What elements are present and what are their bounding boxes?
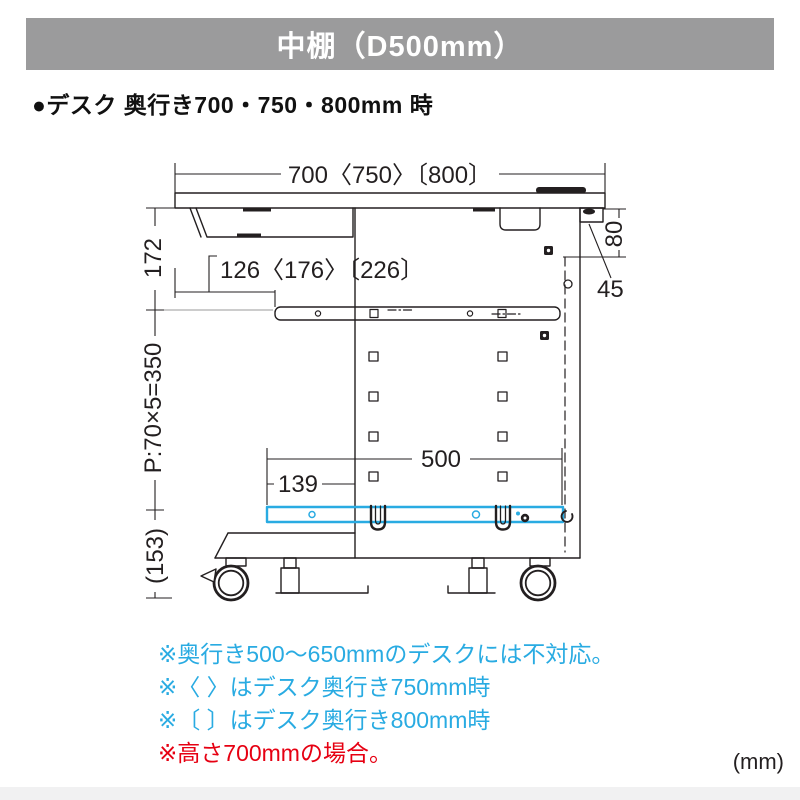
middle-shelf-group bbox=[267, 506, 573, 530]
cable-grommet-lid bbox=[536, 187, 586, 194]
under-desk-tray bbox=[190, 208, 353, 237]
footer-bar bbox=[0, 787, 800, 800]
unit-label: (mm) bbox=[733, 749, 784, 775]
footnotes: ※奥行き500〜650mmのデスクには不対応。 ※〈 〉はデスク奥行き750mm… bbox=[158, 638, 614, 770]
desk-top-slab bbox=[175, 193, 605, 208]
dim-shelf-front-offset-label: 139 bbox=[278, 471, 318, 498]
dim-top-width-label: 700〈750〉〔800〕 bbox=[288, 162, 492, 189]
note-angle-bracket-750: ※〈 〉はデスク奥行き750mm時 bbox=[158, 671, 614, 704]
rear-adjuster-foot bbox=[448, 558, 495, 593]
caster-brake-lever bbox=[201, 569, 216, 582]
dim-rear-height-label: 80 bbox=[601, 221, 628, 248]
tray-pad bbox=[237, 234, 261, 238]
note-depth-incompatible: ※奥行き500〜650mmのデスクには不対応。 bbox=[158, 638, 614, 671]
foot-front bbox=[215, 533, 355, 558]
dim-floor-clearance-label: (153) bbox=[142, 528, 169, 584]
crossrail-group bbox=[275, 307, 560, 320]
dim-hole-pitch-label: P:70×5=350 bbox=[140, 343, 167, 474]
shelf-clamp bbox=[371, 506, 385, 530]
note-square-bracket-800: ※〔 〕はデスク奥行き800mm時 bbox=[158, 704, 614, 737]
dim-rear-overhang-label: 45 bbox=[597, 276, 624, 303]
dim-under-top-label: 172 bbox=[140, 238, 167, 278]
note-height-700: ※高さ700mmの場合。 bbox=[158, 737, 614, 770]
dimensions-group bbox=[139, 163, 628, 598]
underside-pad bbox=[243, 208, 271, 212]
rear-caster bbox=[521, 558, 555, 600]
dim-shelf-depth-label: 500 bbox=[421, 446, 461, 473]
cable-hook-bracket bbox=[500, 208, 540, 230]
casters-group bbox=[201, 558, 555, 600]
shelf-clamp bbox=[496, 506, 510, 530]
underside-pad bbox=[473, 208, 495, 212]
dim-front-inset-label: 126〈176〉〔226〕 bbox=[220, 257, 424, 284]
front-caster bbox=[201, 558, 248, 600]
front-adjuster-foot bbox=[276, 558, 368, 593]
page: 中棚（D500mm） ●デスク 奥行き700・750・800mm 時 bbox=[0, 0, 800, 800]
